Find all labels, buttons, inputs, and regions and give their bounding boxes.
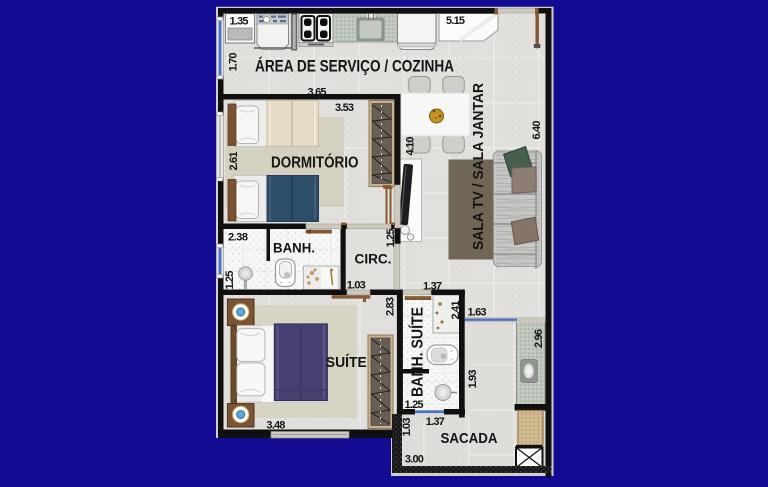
svg-text:1.35: 1.35: [230, 16, 249, 28]
svg-text:CIRC.: CIRC.: [355, 252, 392, 267]
svg-text:5.15: 5.15: [446, 15, 465, 27]
svg-text:DORMITÓRIO: DORMITÓRIO: [271, 153, 359, 172]
svg-text:3.00: 3.00: [405, 454, 424, 466]
svg-text:2.41: 2.41: [450, 301, 462, 320]
svg-text:1.03: 1.03: [347, 280, 366, 292]
svg-text:BANH.: BANH.: [273, 241, 315, 256]
svg-text:1.03: 1.03: [401, 418, 413, 437]
svg-text:1.37: 1.37: [423, 281, 442, 293]
svg-text:1.70: 1.70: [228, 53, 240, 72]
svg-text:4.10: 4.10: [405, 137, 417, 156]
svg-text:1.37: 1.37: [426, 416, 445, 428]
svg-text:1.25: 1.25: [405, 399, 424, 411]
svg-text:SACADA: SACADA: [441, 430, 498, 447]
svg-text:1.93: 1.93: [467, 370, 479, 389]
svg-text:2.38: 2.38: [228, 232, 248, 244]
svg-text:6.40: 6.40: [531, 121, 543, 140]
svg-text:2.83: 2.83: [385, 297, 397, 316]
svg-text:1.63: 1.63: [468, 307, 487, 319]
svg-text:ÁREA DE SERVIÇO / COZINHA: ÁREA DE SERVIÇO / COZINHA: [255, 57, 454, 76]
svg-text:2.61: 2.61: [228, 152, 240, 171]
svg-text:3.65: 3.65: [308, 87, 327, 99]
svg-text:2.96: 2.96: [533, 329, 545, 348]
svg-text:3.48: 3.48: [266, 420, 285, 432]
svg-text:SUÍTE: SUÍTE: [326, 354, 367, 371]
svg-text:1.25: 1.25: [385, 229, 397, 248]
svg-text:SALA TV / SALA JANTAR: SALA TV / SALA JANTAR: [470, 83, 487, 250]
svg-text:3.53: 3.53: [335, 102, 354, 114]
svg-text:BANH. SUÍTE: BANH. SUÍTE: [410, 307, 427, 397]
svg-text:1.25: 1.25: [224, 271, 236, 290]
